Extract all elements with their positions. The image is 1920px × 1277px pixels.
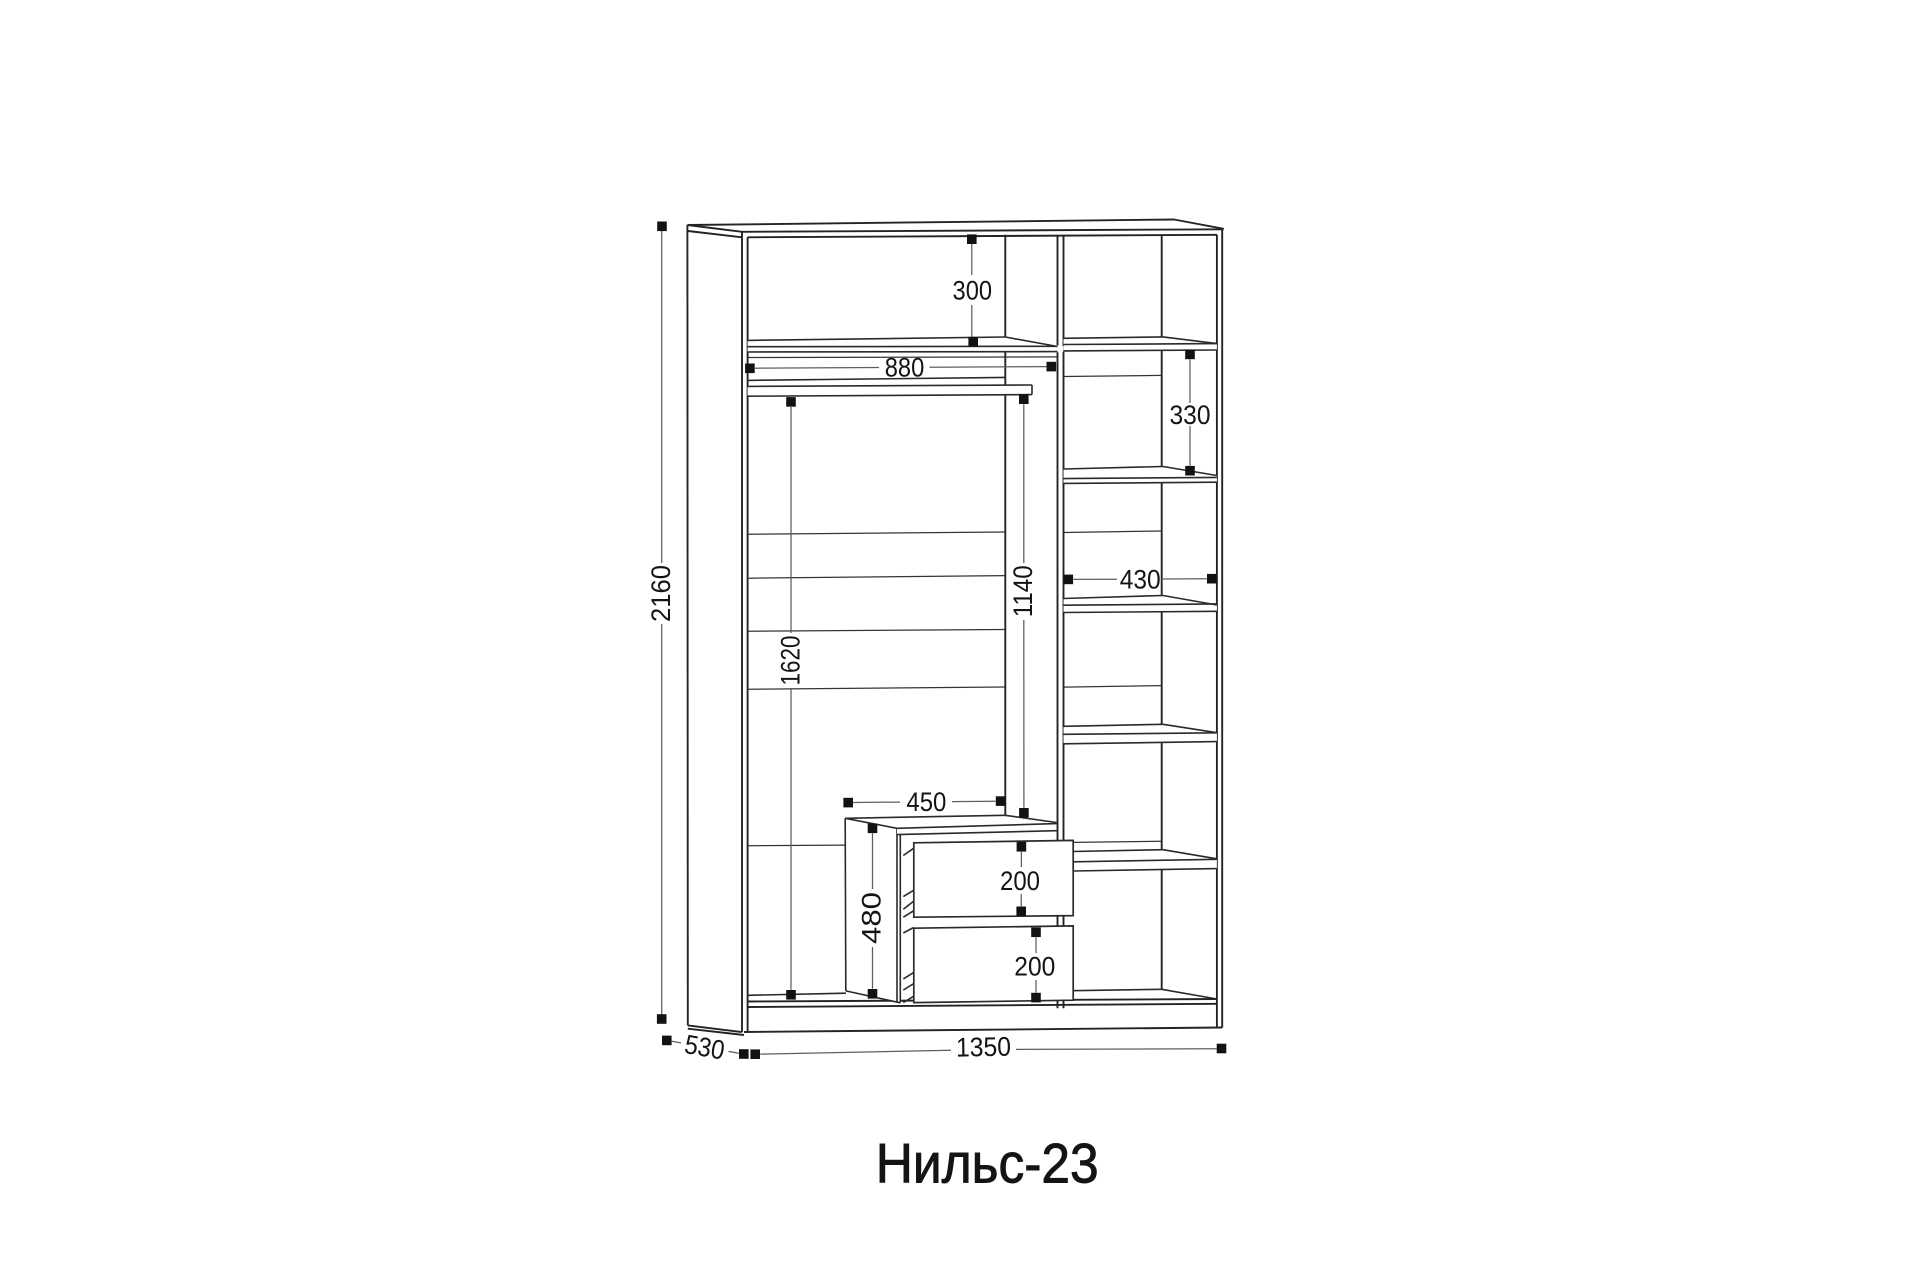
- svg-text:1620: 1620: [775, 636, 805, 686]
- svg-text:1350: 1350: [956, 1032, 1012, 1063]
- svg-text:2160: 2160: [646, 565, 676, 622]
- svg-text:300: 300: [953, 276, 993, 306]
- svg-text:200: 200: [1014, 952, 1055, 982]
- svg-text:480: 480: [856, 892, 886, 944]
- svg-text:880: 880: [885, 352, 925, 382]
- svg-text:450: 450: [906, 787, 946, 817]
- svg-text:Нильс-23: Нильс-23: [876, 1131, 1099, 1194]
- svg-text:200: 200: [1000, 866, 1040, 896]
- svg-text:330: 330: [1170, 400, 1211, 430]
- svg-text:430: 430: [1120, 565, 1161, 595]
- svg-text:1140: 1140: [1008, 565, 1038, 617]
